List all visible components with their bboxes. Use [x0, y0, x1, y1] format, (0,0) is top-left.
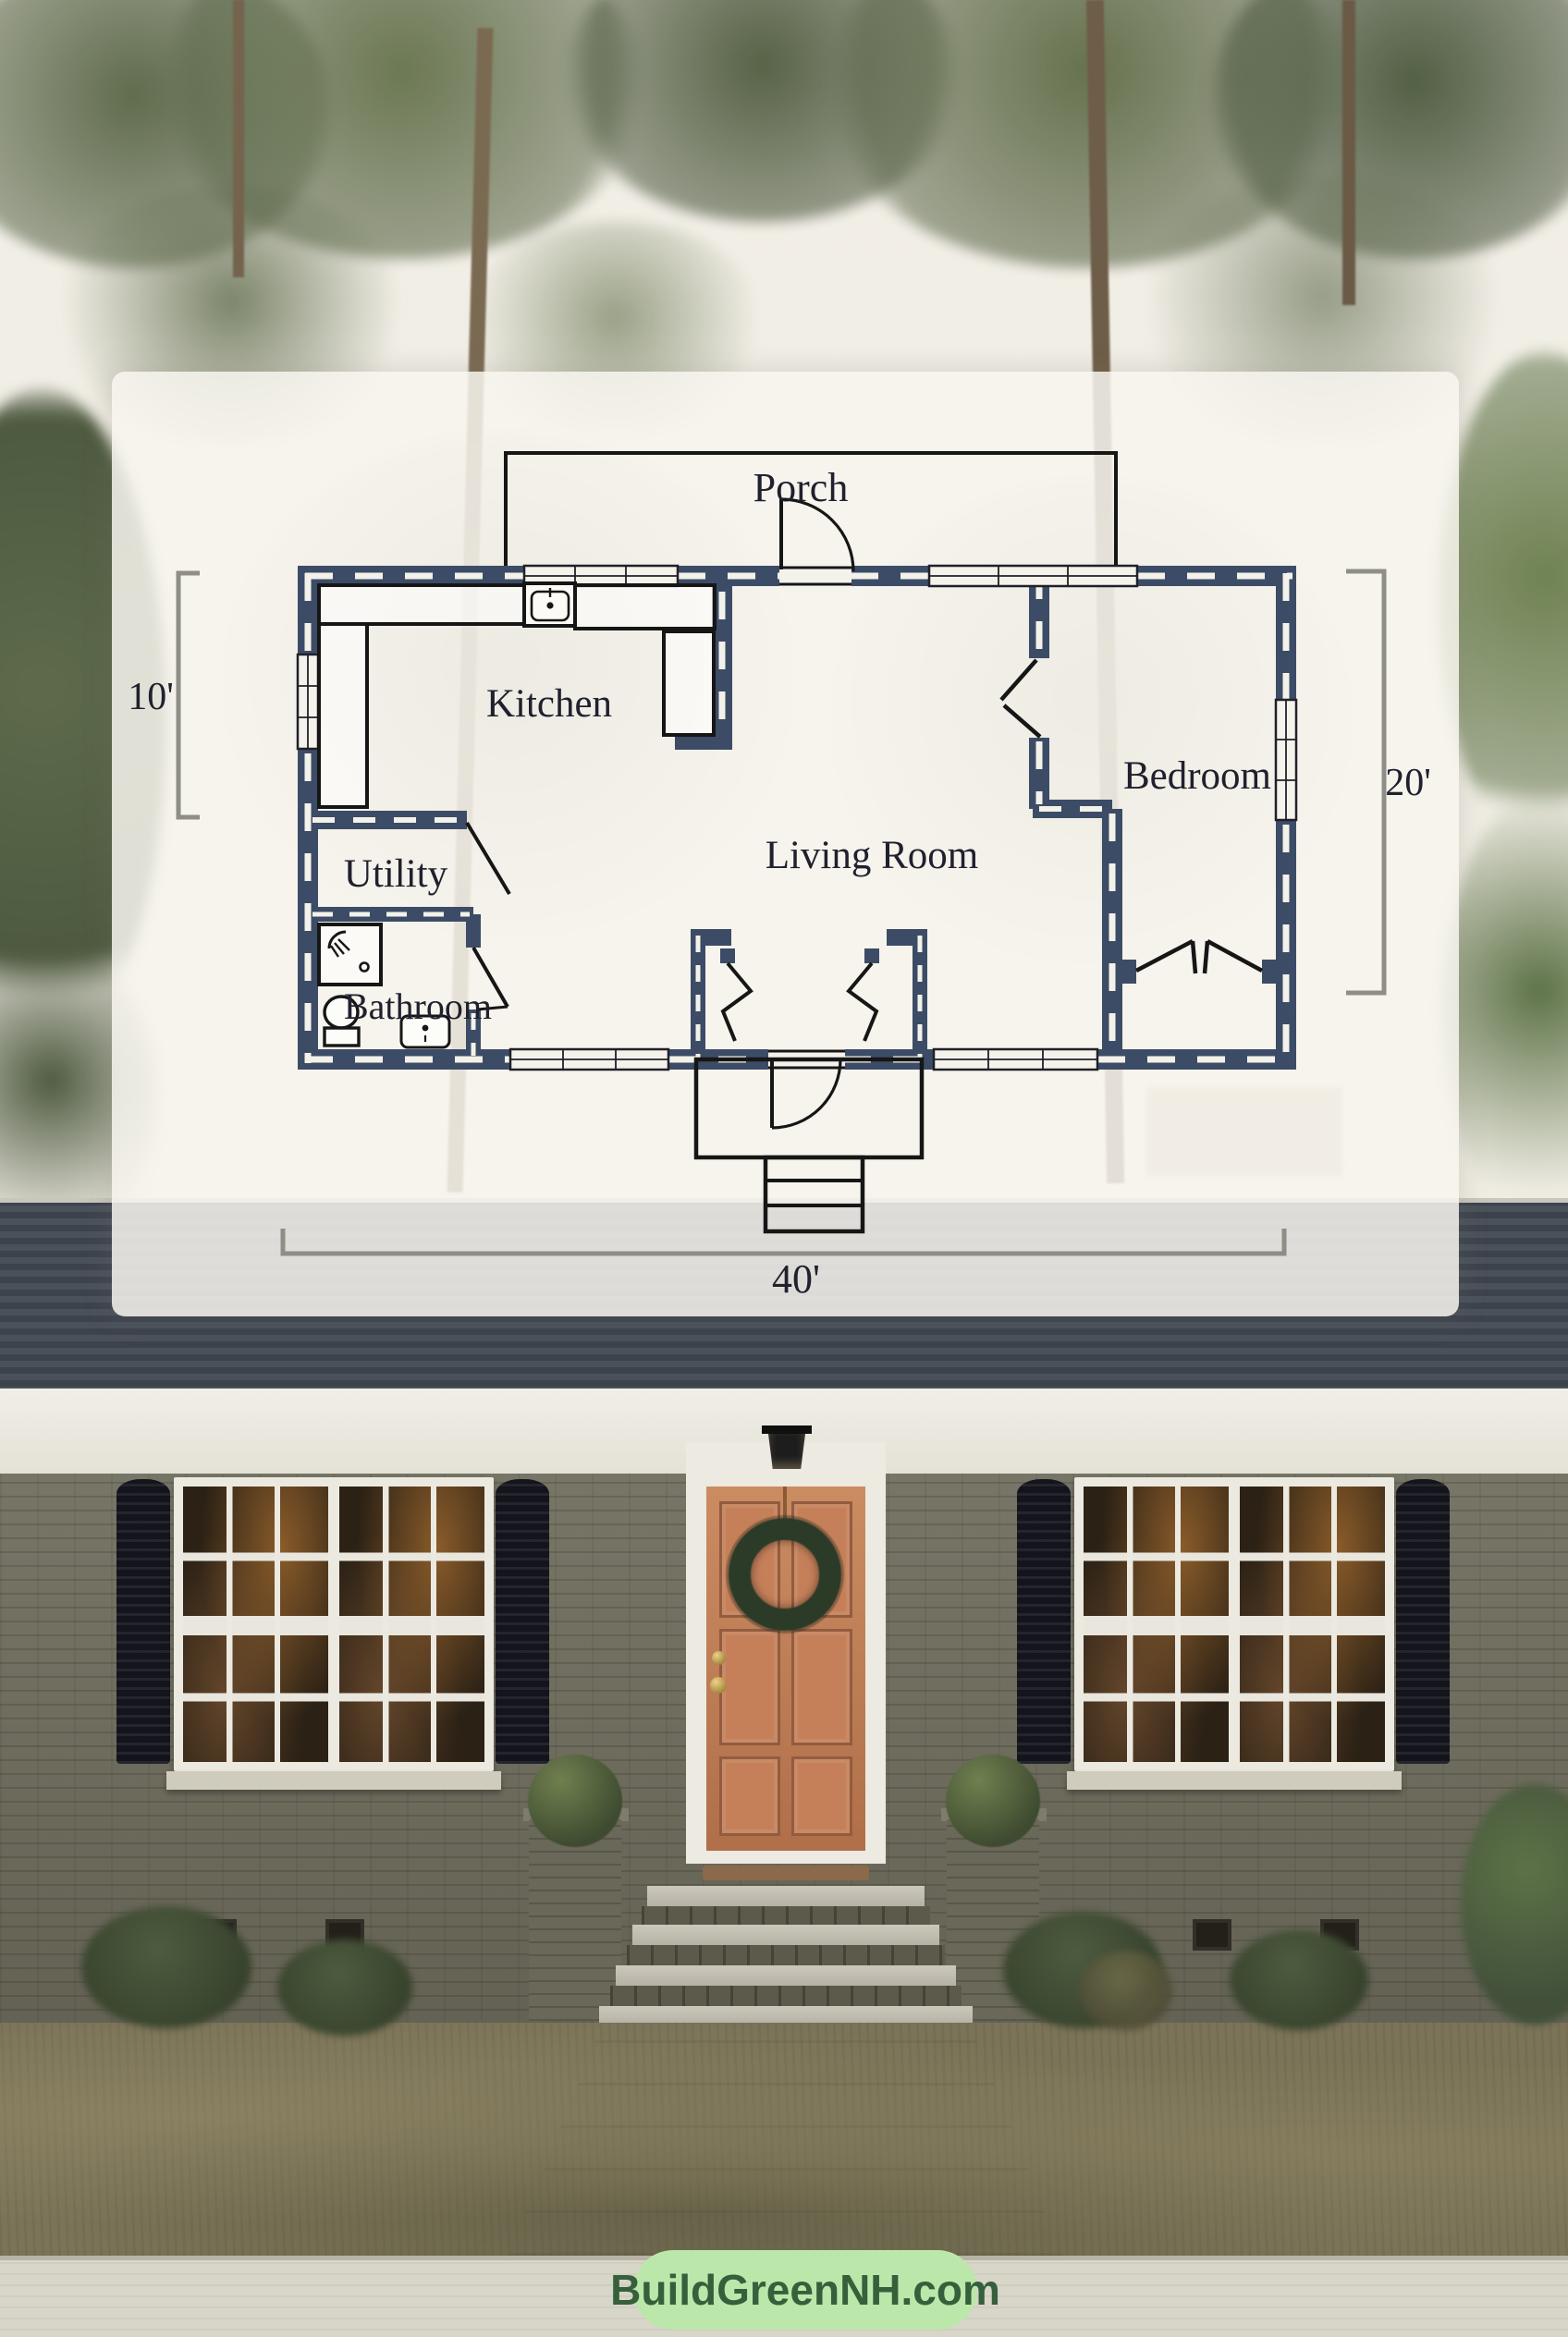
- bedroom-double-doors: [1136, 941, 1262, 973]
- watermark-text: BuildGreenNH.com: [610, 2265, 1000, 2315]
- watermark-pill: BuildGreenNH.com: [633, 2250, 977, 2330]
- shower-icon: [319, 924, 381, 985]
- room-label-kitchen: Kitchen: [486, 682, 612, 726]
- porch-door: [779, 499, 853, 586]
- room-label-bathroom: Bathroom: [344, 985, 492, 1027]
- utility-door: [467, 823, 509, 894]
- room-label-porch: Porch: [753, 465, 849, 510]
- dimension-label-right: 20': [1385, 762, 1431, 804]
- room-label-utility: Utility: [344, 852, 448, 896]
- entry-steps: [766, 1157, 863, 1231]
- entry-stoop: [696, 1059, 922, 1157]
- room-label-bedroom: Bedroom: [1123, 754, 1271, 798]
- dimension-label-left: 10': [128, 676, 174, 718]
- kitchen-sink-icon: [524, 583, 575, 626]
- dimension-label-bottom: 40': [772, 1256, 820, 1302]
- floor-plan: Porch Kitchen Utility Bathroom Living Ro…: [0, 0, 1568, 2337]
- closet-bifold-door: [723, 963, 751, 1041]
- room-label-living-room: Living Room: [766, 834, 979, 877]
- screenshot-root: Porch Kitchen Utility Bathroom Living Ro…: [0, 0, 1568, 2337]
- bedroom-door: [1001, 660, 1040, 737]
- closet-bifold-door: [849, 963, 876, 1041]
